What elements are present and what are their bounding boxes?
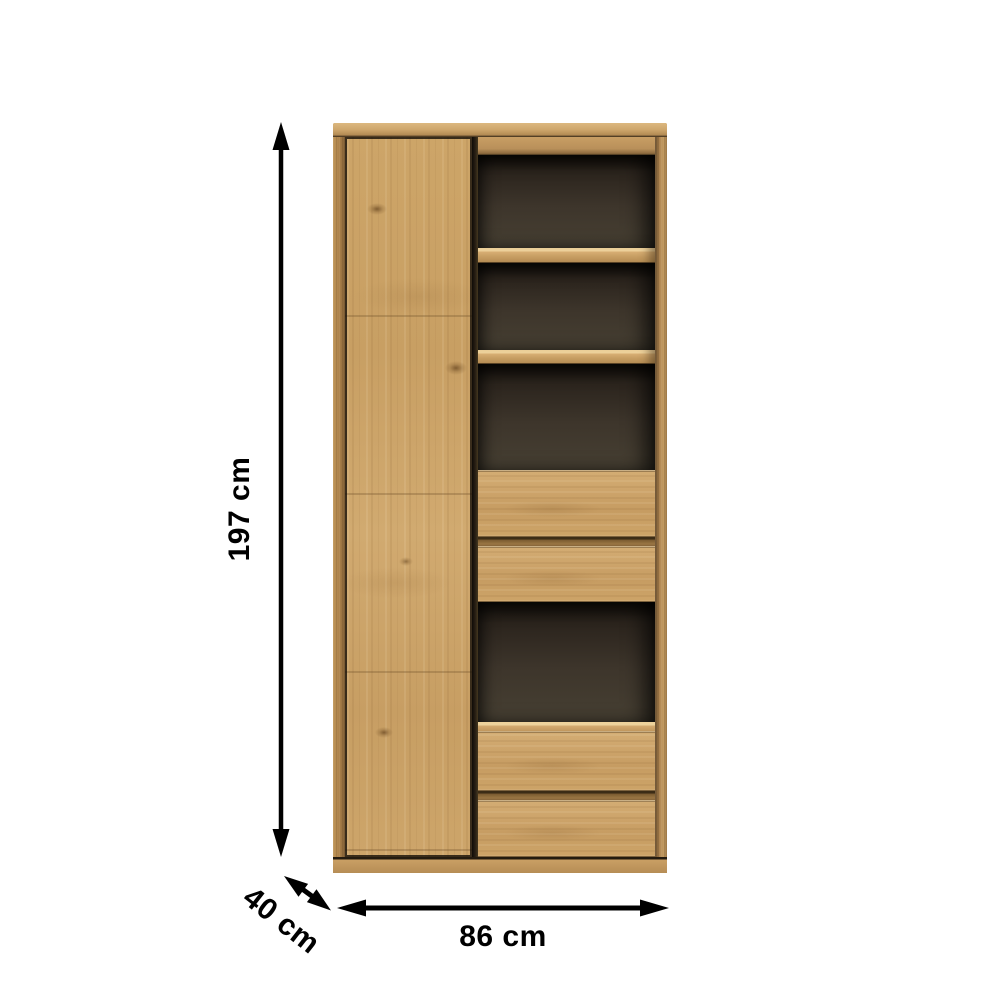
height-arrow-icon xyxy=(273,122,290,857)
drawer-2 xyxy=(478,546,655,602)
cabinet-door xyxy=(345,137,472,857)
cabinet-bottom-plinth xyxy=(333,857,667,873)
cabinet-right-frame xyxy=(655,137,667,873)
wood-knot xyxy=(399,557,413,566)
open-compartment-4 xyxy=(478,602,655,722)
cabinet-left-frame xyxy=(333,137,345,873)
open-compartment-1 xyxy=(478,155,655,248)
wood-knot xyxy=(445,361,467,375)
product-dimension-diagram: 197 cm 40 cm 86 cm xyxy=(0,0,1000,1000)
drawer-top-edge xyxy=(478,722,655,731)
shelf-and-drawer-column xyxy=(478,137,655,857)
drawer-4 xyxy=(478,800,655,857)
drawer-groove-1 xyxy=(478,537,655,546)
shelf-board-2 xyxy=(478,350,655,364)
open-compartment-3 xyxy=(478,364,655,470)
cabinet xyxy=(333,123,667,873)
top-interior-strip xyxy=(478,137,655,155)
depth-dimension-label: 40 cm xyxy=(236,881,326,962)
wood-knot xyxy=(375,727,393,738)
shelf-board-1 xyxy=(478,248,655,263)
depth-arrow-icon xyxy=(284,876,331,911)
width-dimension-label: 86 cm xyxy=(459,920,547,954)
drawer-groove-2 xyxy=(478,791,655,800)
drawer-3 xyxy=(478,731,655,791)
cabinet-top-edge xyxy=(333,123,667,137)
height-dimension-label: 197 cm xyxy=(223,457,257,562)
drawer-1 xyxy=(478,470,655,537)
open-compartment-2 xyxy=(478,263,655,350)
wood-knot xyxy=(367,203,387,215)
width-arrow-icon xyxy=(337,900,669,917)
